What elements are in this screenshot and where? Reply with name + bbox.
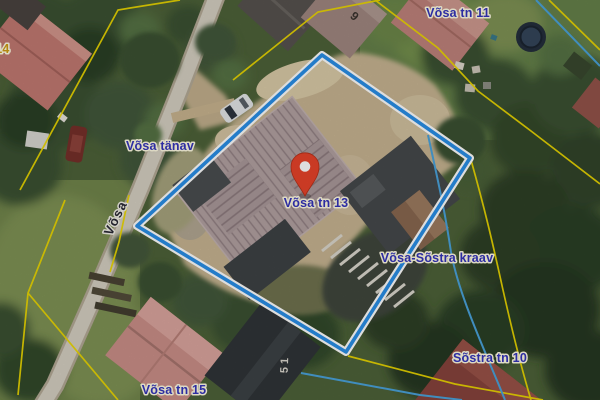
map-viewport[interactable]: 9 51 n14 Võsa tn 11 Võsa tänav Võsa Võsa… [0, 0, 600, 400]
photo-grain-overlay [0, 0, 600, 400]
